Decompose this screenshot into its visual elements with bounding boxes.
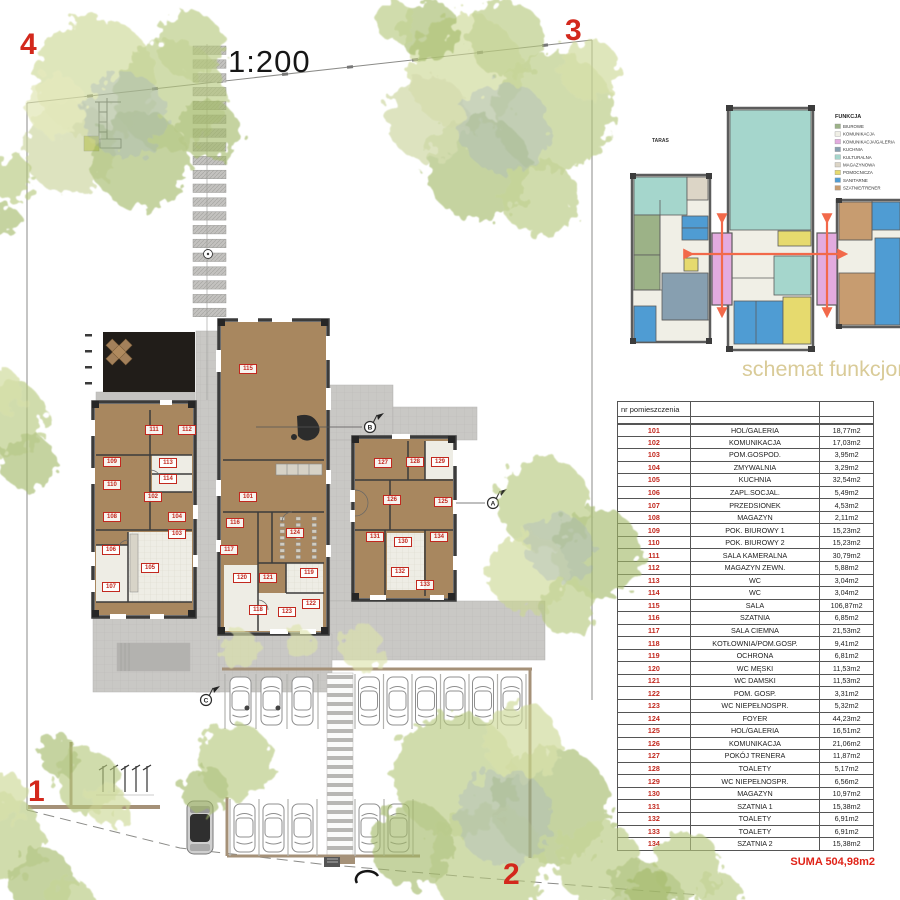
table-cell: SALA KAMERALNA: [691, 549, 820, 561]
table-cell: TOALETY: [691, 763, 820, 775]
table-row: 106ZAPL.SOCJAL.5,49m2: [617, 487, 874, 500]
table-cell: 15,23m2: [820, 537, 874, 549]
legend-label: KUCHNIA: [843, 147, 863, 152]
table-cell: 16,51m2: [820, 725, 874, 737]
table-cell: 6,91m2: [820, 826, 874, 838]
legend-label: KOMUNIKACJA: [843, 132, 875, 137]
table-row: 116SZATNIA6,85m2: [617, 612, 874, 625]
table-cell: 5,32m2: [820, 700, 874, 712]
table-cell: 32,54m2: [820, 474, 874, 486]
legend-swatch: [835, 186, 841, 191]
function-legend: FUNKCJA BIUROWEKOMUNIKACJAKOMUNIKACJA/GA…: [835, 114, 895, 191]
table-row: 102KOMUNIKACJA17,03m2: [617, 437, 874, 450]
legend-label: POMOCNICZA: [843, 170, 873, 175]
table-cell: 15,23m2: [820, 524, 874, 536]
table-cell: KUCHNIA: [691, 474, 820, 486]
table-cell: 104: [618, 462, 691, 474]
legend-item: KUCHNIA: [835, 147, 863, 152]
table-row: 123WC NIEPEŁNOSPR.5,32m2: [617, 700, 874, 713]
legend-item: SZATNIE/TRENER: [835, 186, 881, 191]
table-cell: 3,31m2: [820, 687, 874, 699]
table-cell: 116: [618, 612, 691, 624]
table-cell: 103: [618, 449, 691, 461]
table-cell: 108: [618, 512, 691, 524]
legend-item: KULTURALNA: [835, 155, 872, 160]
legend-item: POMOCNICZA: [835, 170, 873, 175]
table-cell: 121: [618, 675, 691, 687]
table-row: 130MAGAZYN10,97m2: [617, 788, 874, 801]
table-cell: 17,03m2: [820, 437, 874, 449]
legend-item: MAGAZYNOWA: [835, 163, 875, 168]
table-cell: POK. BIUROWY 1: [691, 524, 820, 536]
table-row: 111SALA KAMERALNA30,79m2: [617, 549, 874, 562]
functional-schematic: TARAS FUNKCJA BIUROWEKOMUNIKACJAKOMUNIKA…: [610, 88, 900, 395]
legend-label: SANITARNE: [843, 178, 868, 183]
table-cell: 128: [618, 763, 691, 775]
table-header-label: nr pomieszczenia: [618, 402, 691, 416]
legend-title: FUNKCJA: [835, 114, 861, 120]
table-cell: 131: [618, 800, 691, 812]
taras-label: TARAS: [652, 138, 670, 144]
legend-swatch: [835, 139, 841, 144]
legend-item: KOMUNIKACJA/GALERIA: [835, 139, 895, 144]
table-cell: 3,04m2: [820, 575, 874, 587]
table-cell: 6,85m2: [820, 612, 874, 624]
table-cell: 112: [618, 562, 691, 574]
table-row: 134SZATNIA 215,38m2: [617, 838, 874, 851]
legend-swatch: [835, 170, 841, 175]
table-cell: ZAPL.SOCJAL.: [691, 487, 820, 499]
table-cell: FOYER: [691, 713, 820, 725]
table-cell: 3,04m2: [820, 587, 874, 599]
table-cell: 120: [618, 662, 691, 674]
table-row: 110POK. BIUROWY 215,23m2: [617, 537, 874, 550]
table-row: 105KUCHNIA32,54m2: [617, 474, 874, 487]
table-cell: 133: [618, 826, 691, 838]
table-cell: 111: [618, 549, 691, 561]
table-row: 119OCHRONA6,81m2: [617, 650, 874, 663]
table-cell: 113: [618, 575, 691, 587]
table-cell: 106: [618, 487, 691, 499]
table-row: 126KOMUNIKACJA21,06m2: [617, 738, 874, 751]
table-cell: HOL/GALERIA: [691, 425, 820, 436]
table-cell: POM.GOSPOD.: [691, 449, 820, 461]
table-cell: 130: [618, 788, 691, 800]
table-cell: 132: [618, 813, 691, 825]
table-row: 128TOALETY5,17m2: [617, 763, 874, 776]
table-cell: 44,23m2: [820, 713, 874, 725]
table-cell: SZATNIA 1: [691, 800, 820, 812]
table-cell: 2,11m2: [820, 512, 874, 524]
table-cell: 115: [618, 600, 691, 612]
table-row: 132TOALETY6,91m2: [617, 813, 874, 826]
table-cell: 11,53m2: [820, 675, 874, 687]
table-cell: 125: [618, 725, 691, 737]
table-cell: 114: [618, 587, 691, 599]
table-cell: SZATNIA 2: [691, 838, 820, 850]
table-cell: 110: [618, 537, 691, 549]
table-cell: 6,91m2: [820, 813, 874, 825]
table-cell: 15,38m2: [820, 838, 874, 850]
table-row: 120WC MĘSKI11,53m2: [617, 662, 874, 675]
table-cell: WC NIEPEŁNOSPR.: [691, 775, 820, 787]
table-cell: 11,87m2: [820, 750, 874, 762]
table-row: 115SALA106,87m2: [617, 600, 874, 613]
legend-label: KULTURALNA: [843, 155, 872, 160]
table-cell: 109: [618, 524, 691, 536]
table-cell: POK. BIUROWY 2: [691, 537, 820, 549]
table-row: 103POM.GOSPOD.3,95m2: [617, 449, 874, 462]
table-cell: 127: [618, 750, 691, 762]
schematic-middle-block: [728, 108, 813, 350]
rooms-table: nr pomieszczenia 101HOL/GALERIA18,77m210…: [617, 401, 874, 851]
table-cell: 4,53m2: [820, 499, 874, 511]
table-cell: POKÓJ TRENERA: [691, 750, 820, 762]
table-row: 124FOYER44,23m2: [617, 713, 874, 726]
table-cell: 134: [618, 838, 691, 850]
table-cell: 5,88m2: [820, 562, 874, 574]
table-cell: ZMYWALNIA: [691, 462, 820, 474]
table-cell: SALA CIEMNA: [691, 625, 820, 637]
legend-label: MAGAZYNOWA: [843, 163, 875, 168]
table-row: 129WC NIEPEŁNOSPR.6,56m2: [617, 775, 874, 788]
table-row: 109POK. BIUROWY 115,23m2: [617, 524, 874, 537]
table-cell: MAGAZYN: [691, 512, 820, 524]
legend-label: KOMUNIKACJA/GALERIA: [843, 139, 895, 144]
table-cell: POM. GOSP.: [691, 687, 820, 699]
table-cell: 124: [618, 713, 691, 725]
table-cell: 126: [618, 738, 691, 750]
table-cell: 122: [618, 687, 691, 699]
table-cell: 117: [618, 625, 691, 637]
table-row: 127POKÓJ TRENERA11,87m2: [617, 750, 874, 763]
legend-swatch: [835, 155, 841, 160]
table-cell: 3,95m2: [820, 449, 874, 461]
right-panel: TARAS FUNKCJA BIUROWEKOMUNIKACJAKOMUNIKA…: [0, 0, 900, 900]
legend-label: SZATNIE/TRENER: [843, 186, 881, 191]
table-row: 114WC3,04m2: [617, 587, 874, 600]
table-cell: TOALETY: [691, 826, 820, 838]
table-cell: WC DAMSKI: [691, 675, 820, 687]
legend-item: SANITARNE: [835, 178, 868, 183]
table-cell: 118: [618, 637, 691, 649]
table-row: 112MAGAZYN ZEWN.5,88m2: [617, 562, 874, 575]
table-row: 113WC3,04m2: [617, 575, 874, 588]
table-cell: WC: [691, 575, 820, 587]
table-cell: PRZEDSIONEK: [691, 499, 820, 511]
legend-swatch: [835, 178, 841, 183]
legend-swatch: [835, 163, 841, 168]
table-gap-row: [617, 417, 874, 424]
table-cell: SALA: [691, 600, 820, 612]
schematic-caption: schemat funkcjona: [742, 357, 900, 382]
legend-swatch: [835, 132, 841, 137]
table-cell: 9,41m2: [820, 637, 874, 649]
table-cell: KOMUNIKACJA: [691, 437, 820, 449]
table-header: nr pomieszczenia: [617, 401, 874, 417]
table-cell: 3,29m2: [820, 462, 874, 474]
table-cell: 102: [618, 437, 691, 449]
table-row: 118KOTŁOWNIA/POM.GOSP.9,41m2: [617, 637, 874, 650]
legend-item: KOMUNIKACJA: [835, 132, 875, 137]
table-cell: 107: [618, 499, 691, 511]
table-row: 133TOALETY6,91m2: [617, 826, 874, 839]
table-cell: TOALETY: [691, 813, 820, 825]
legend-label: BIUROWE: [843, 124, 864, 129]
legend-item: BIUROWE: [835, 124, 864, 129]
table-row: 117SALA CIEMNA21,53m2: [617, 625, 874, 638]
table-row: 101HOL/GALERIA18,77m2: [617, 424, 874, 437]
table-cell: 18,77m2: [820, 425, 874, 436]
table-cell: WC NIEPEŁNOSPR.: [691, 700, 820, 712]
table-cell: 5,49m2: [820, 487, 874, 499]
table-cell: 10,97m2: [820, 788, 874, 800]
table-row: 104ZMYWALNIA3,29m2: [617, 462, 874, 475]
table-row: 107PRZEDSIONEK4,53m2: [617, 499, 874, 512]
table-cell: KOTŁOWNIA/POM.GOSP.: [691, 637, 820, 649]
table-cell: 5,17m2: [820, 763, 874, 775]
table-cell: 101: [618, 425, 691, 436]
table-row: 125HOL/GALERIA16,51m2: [617, 725, 874, 738]
table-cell: 21,53m2: [820, 625, 874, 637]
table-cell: 11,53m2: [820, 662, 874, 674]
table-cell: 119: [618, 650, 691, 662]
suma-label: SUMA 504,98m2: [690, 856, 875, 868]
table-cell: MAGAZYN ZEWN.: [691, 562, 820, 574]
table-cell: 106,87m2: [820, 600, 874, 612]
table-cell: 6,81m2: [820, 650, 874, 662]
legend-swatch: [835, 147, 841, 152]
table-cell: KOMUNIKACJA: [691, 738, 820, 750]
table-row: 108MAGAZYN2,11m2: [617, 512, 874, 525]
table-row: 131SZATNIA 115,38m2: [617, 800, 874, 813]
table-cell: 6,56m2: [820, 775, 874, 787]
table-cell: WC MĘSKI: [691, 662, 820, 674]
table-cell: MAGAZYN: [691, 788, 820, 800]
table-row: 121WC DAMSKI11,53m2: [617, 675, 874, 688]
table-cell: 105: [618, 474, 691, 486]
table-row: 122POM. GOSP.3,31m2: [617, 687, 874, 700]
table-cell: 21,06m2: [820, 738, 874, 750]
table-cell: 15,38m2: [820, 800, 874, 812]
legend-swatch: [835, 124, 841, 129]
table-cell: SZATNIA: [691, 612, 820, 624]
table-cell: OCHRONA: [691, 650, 820, 662]
table-cell: WC: [691, 587, 820, 599]
table-cell: HOL/GALERIA: [691, 725, 820, 737]
table-cell: 123: [618, 700, 691, 712]
table-cell: 30,79m2: [820, 549, 874, 561]
schematic-right-block: [837, 200, 900, 327]
table-cell: 129: [618, 775, 691, 787]
schematic-left-block: [632, 175, 710, 342]
